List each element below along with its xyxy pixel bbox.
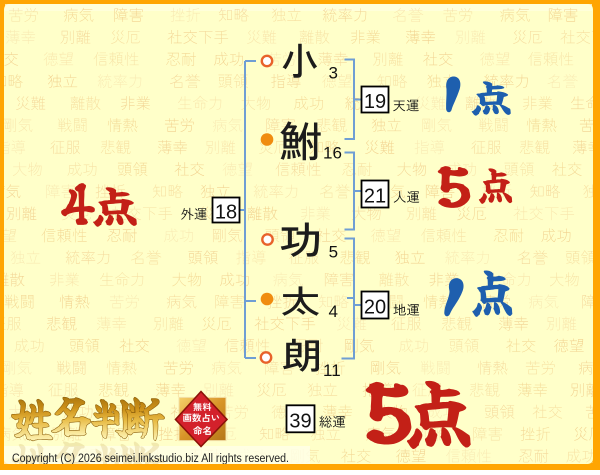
svg-text:20: 20 [364,297,386,319]
svg-text:21: 21 [364,186,386,208]
svg-text:18: 18 [215,202,237,224]
svg-text:4: 4 [329,302,338,321]
svg-text:11: 11 [323,361,341,380]
svg-text:16: 16 [323,144,342,163]
svg-text:3: 3 [329,63,338,82]
svg-text:5: 5 [329,243,338,262]
svg-text:19: 19 [364,91,386,113]
svg-text:Copyright (C) 2026 seimei.link: Copyright (C) 2026 seimei.linkstudio.biz… [12,453,289,465]
svg-text:39: 39 [289,410,311,432]
